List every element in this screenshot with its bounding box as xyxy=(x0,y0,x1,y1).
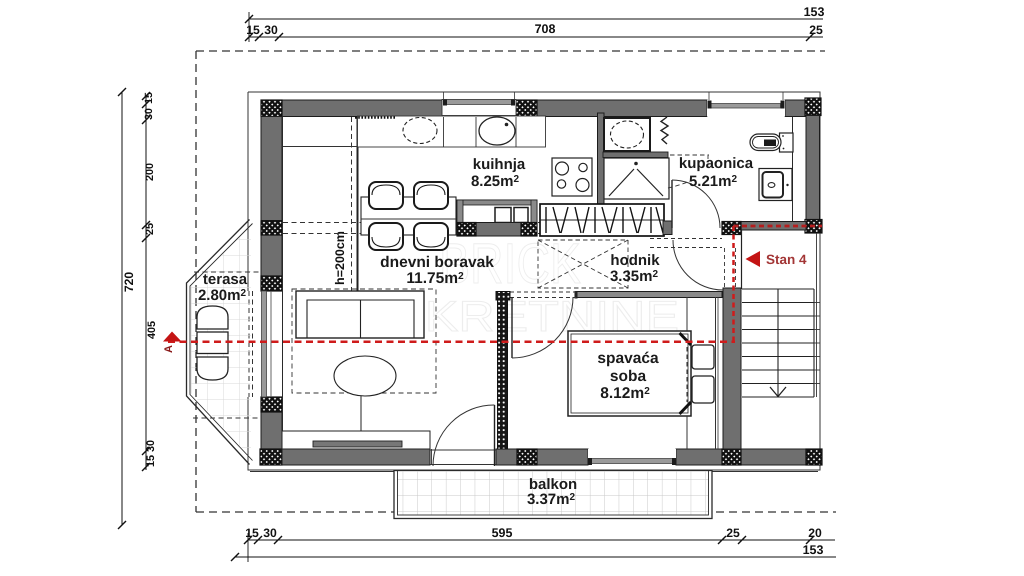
svg-text:30: 30 xyxy=(264,23,278,37)
svg-text:soba: soba xyxy=(610,368,647,385)
svg-text:720: 720 xyxy=(122,272,136,293)
svg-text:20: 20 xyxy=(808,526,822,540)
svg-text:h=200cm: h=200cm xyxy=(333,231,347,285)
svg-text:hodnik: hodnik xyxy=(610,252,660,269)
svg-text:A: A xyxy=(163,345,175,353)
svg-text:3.37m2: 3.37m2 xyxy=(527,491,576,508)
svg-text:kuihnja: kuihnja xyxy=(473,156,526,173)
svg-text:3.35m2: 3.35m2 xyxy=(610,268,659,285)
svg-text:kupaonica: kupaonica xyxy=(679,155,754,172)
svg-text:30: 30 xyxy=(263,526,277,540)
svg-text:5.21m2: 5.21m2 xyxy=(689,173,738,190)
svg-text:11.75m2: 11.75m2 xyxy=(406,270,464,287)
svg-text:8.12m2: 8.12m2 xyxy=(600,385,650,402)
svg-text:25: 25 xyxy=(726,526,740,540)
svg-text:spavaća: spavaća xyxy=(597,350,659,367)
svg-text:153: 153 xyxy=(803,543,824,557)
svg-text:terasa: terasa xyxy=(203,271,248,288)
svg-text:200: 200 xyxy=(144,163,156,181)
svg-text:8.25m2: 8.25m2 xyxy=(471,173,520,190)
svg-text:2.80m2: 2.80m2 xyxy=(198,287,247,304)
svg-text:dnevni boravak: dnevni boravak xyxy=(380,254,494,271)
svg-text:Stan 4: Stan 4 xyxy=(766,252,807,267)
svg-text:15: 15 xyxy=(145,455,157,467)
svg-text:30: 30 xyxy=(145,440,157,452)
svg-text:405: 405 xyxy=(146,321,158,339)
svg-text:708: 708 xyxy=(535,22,556,36)
svg-text:15: 15 xyxy=(245,526,259,540)
svg-text:153: 153 xyxy=(804,5,825,19)
svg-text:30: 30 xyxy=(143,108,155,120)
svg-text:25: 25 xyxy=(144,223,156,235)
svg-text:15: 15 xyxy=(143,92,155,104)
svg-text:15: 15 xyxy=(246,23,260,37)
svg-text:595: 595 xyxy=(492,526,513,540)
